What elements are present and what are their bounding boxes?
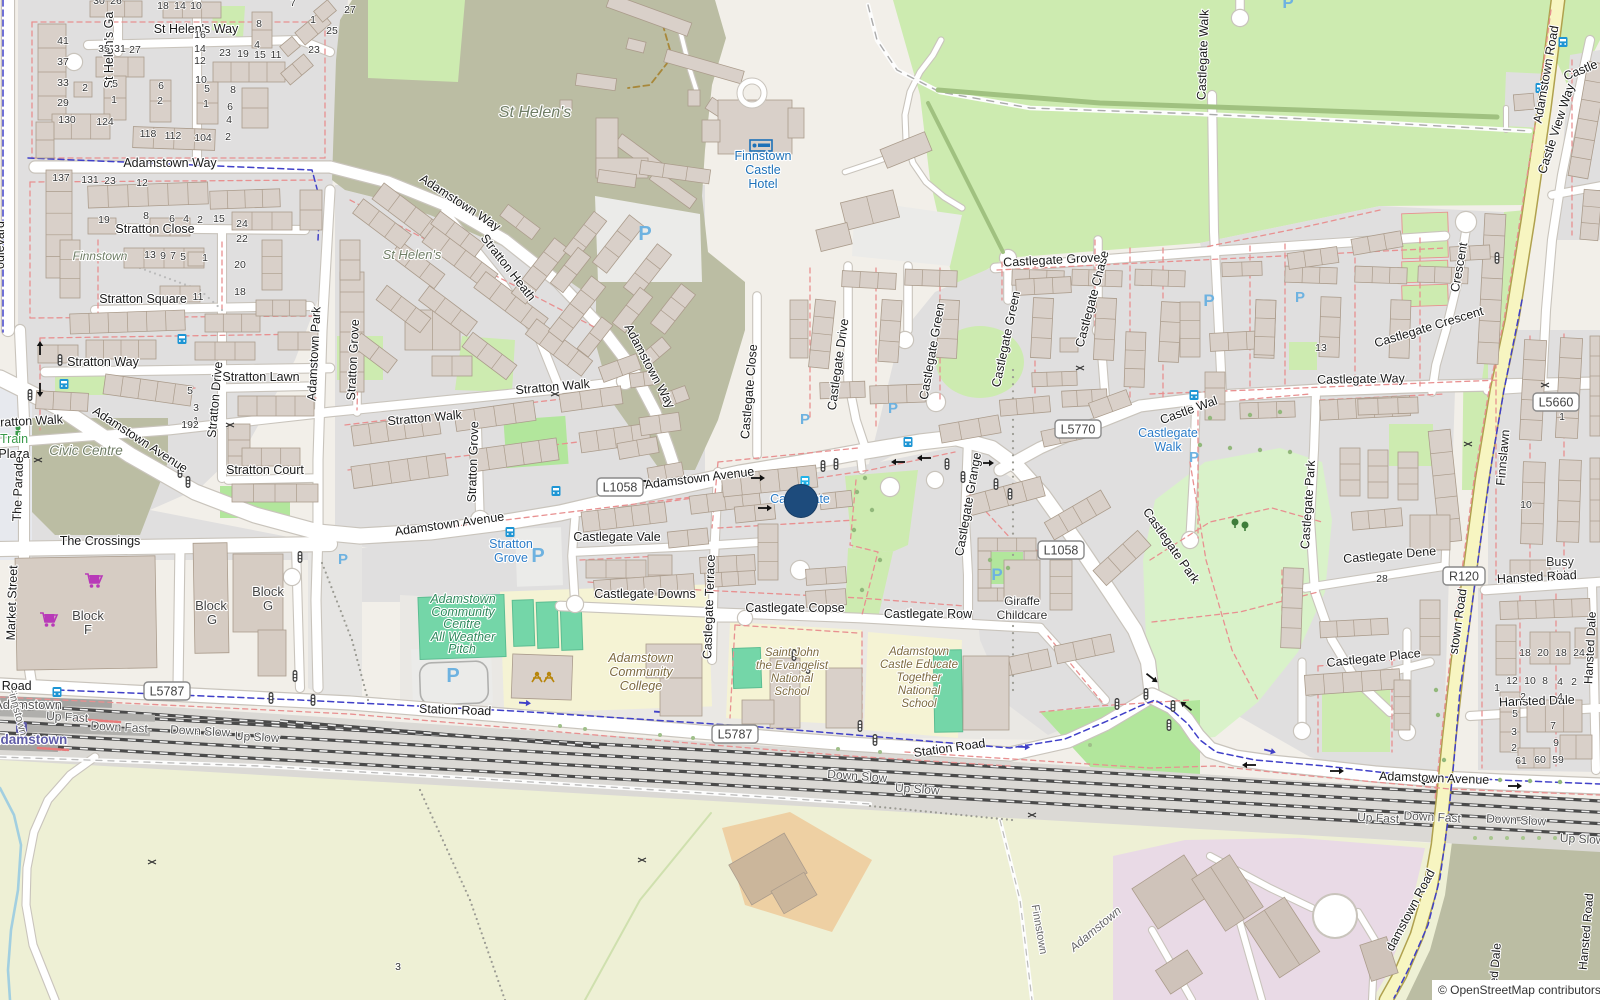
svg-text:12: 12 [136,177,148,189]
svg-text:Stratton Way: Stratton Way [67,355,140,369]
svg-text:13: 13 [144,249,156,261]
svg-text:Stratton: Stratton [489,537,533,551]
svg-text:P: P [446,665,459,687]
svg-text:4: 4 [183,213,189,225]
svg-text:112: 112 [165,130,182,142]
svg-text:30: 30 [93,0,105,7]
svg-text:© OpenStreetMap contributors: © OpenStreetMap contributors [1438,983,1600,997]
svg-text:G: G [263,598,273,613]
svg-text:Block: Block [72,608,104,623]
svg-text:P: P [888,400,898,417]
svg-text:oulevard: oulevard [0,221,7,269]
svg-text:25: 25 [326,25,338,37]
svg-text:Castlegate Copse: Castlegate Copse [745,601,844,615]
svg-text:Castlegate Way: Castlegate Way [1317,371,1406,387]
svg-text:School: School [901,698,937,710]
svg-text:28: 28 [1376,573,1388,585]
svg-text:Community: Community [609,665,673,679]
svg-text:R120: R120 [1449,570,1479,584]
svg-text:6: 6 [169,213,175,225]
svg-text:8: 8 [256,18,262,30]
svg-text:35: 35 [98,43,110,55]
svg-text:11: 11 [271,49,282,61]
svg-text:National: National [898,685,941,697]
svg-text:Adamstown: Adamstown [607,651,673,665]
svg-text:3: 3 [1511,726,1517,738]
svg-text:the Evangelist: the Evangelist [756,660,829,672]
svg-text:Adamstown: Adamstown [429,592,495,606]
svg-text:1: 1 [1559,411,1565,423]
svg-text:60: 60 [1534,754,1546,766]
svg-text:22: 22 [236,233,248,245]
svg-text:137: 137 [52,172,70,184]
svg-text:Grove: Grove [494,551,528,565]
svg-text:Block: Block [195,598,227,613]
svg-text:P: P [1282,0,1293,12]
svg-text:5: 5 [1512,708,1518,720]
svg-text:Train: Train [0,432,28,446]
svg-text:3: 3 [193,402,199,414]
svg-text:16: 16 [194,29,206,41]
svg-text:L1058: L1058 [1044,544,1079,558]
svg-text:41: 41 [57,35,69,47]
svg-text:18: 18 [157,0,169,12]
svg-text:Castlegate Row: Castlegate Row [884,607,973,621]
svg-text:13: 13 [1315,342,1327,354]
svg-text:Adamstown Way: Adamstown Way [123,156,217,170]
svg-text:4: 4 [1557,676,1563,688]
svg-text:St Helen's: St Helen's [499,104,571,121]
svg-text:6: 6 [158,80,164,92]
svg-text:2: 2 [82,82,88,94]
svg-text:Stratton Court: Stratton Court [226,463,304,477]
svg-text:Castlegate Vale: Castlegate Vale [573,530,660,544]
svg-text:2: 2 [1571,676,1577,688]
svg-text:5: 5 [187,385,193,397]
svg-text:The Crossings: The Crossings [60,534,141,548]
svg-text:27: 27 [129,44,141,56]
svg-text:7: 7 [290,0,296,9]
svg-text:Adamstown: Adamstown [0,732,67,747]
svg-text:2: 2 [1520,691,1526,703]
svg-text:P: P [1295,289,1305,306]
svg-text:4: 4 [1557,691,1563,703]
svg-text:Up Slow: Up Slow [235,729,281,745]
svg-text:School: School [774,686,810,698]
svg-text:2: 2 [197,214,203,226]
svg-text:1: 1 [203,98,209,110]
svg-text:24: 24 [1573,647,1585,659]
svg-text:10: 10 [1520,499,1532,511]
svg-text:23: 23 [308,44,320,56]
svg-text:The Parade: The Parade [10,456,26,522]
svg-text:12: 12 [194,55,206,67]
svg-text:Walk: Walk [1154,440,1182,454]
svg-text:33: 33 [57,77,69,89]
svg-text:L5787: L5787 [718,728,753,742]
svg-text:P: P [531,545,544,567]
svg-text:P: P [338,551,348,568]
svg-text:P: P [1189,449,1199,466]
svg-text:Finnstown: Finnstown [735,149,792,163]
svg-text:Castlegate Downs: Castlegate Downs [594,587,695,601]
svg-text:Up Fast: Up Fast [46,709,89,725]
svg-text:4: 4 [226,114,232,126]
svg-text:L5787: L5787 [150,685,185,699]
svg-text:3: 3 [395,961,401,973]
svg-text:Castlegate: Castlegate [1138,426,1198,440]
svg-text:8: 8 [143,210,149,222]
svg-text:Castle Educate: Castle Educate [880,659,958,671]
svg-text:National: National [771,673,814,685]
svg-text:L5770: L5770 [1061,423,1096,437]
svg-text:Hotel: Hotel [748,177,777,191]
svg-text:Station Road: Station Road [419,702,492,719]
svg-text:Up Fast: Up Fast [1357,810,1400,826]
svg-text:Finnstown: Finnstown [73,249,128,263]
svg-text:Together: Together [897,672,943,684]
svg-text:130: 130 [58,114,76,126]
svg-text:15: 15 [213,213,225,225]
svg-text:59: 59 [1552,754,1564,766]
svg-text:G: G [207,612,217,627]
svg-text:Giraffe: Giraffe [1004,594,1040,608]
svg-text:7: 7 [170,250,176,262]
svg-text:College: College [620,679,662,693]
svg-text:19: 19 [237,48,249,60]
svg-text:5: 5 [112,78,118,90]
svg-text:20: 20 [1537,647,1549,659]
svg-text:192: 192 [181,419,199,431]
svg-text:10: 10 [190,0,202,12]
svg-text:26: 26 [110,0,122,7]
svg-text:7: 7 [1550,720,1556,732]
svg-text:P: P [1203,291,1214,310]
svg-text:1: 1 [111,94,117,106]
svg-text:24: 24 [236,218,248,230]
svg-text:St Helen's: St Helen's [383,247,442,262]
svg-text:14: 14 [174,0,186,12]
svg-text:1: 1 [202,252,208,264]
svg-text:Childcare: Childcare [997,608,1048,622]
svg-text:1: 1 [1494,682,1500,694]
svg-text:31: 31 [114,43,126,55]
svg-text:Stratton Grove: Stratton Grove [465,421,482,503]
svg-text:18: 18 [234,286,246,298]
svg-text:9: 9 [160,250,166,262]
svg-text:9: 9 [1553,737,1559,749]
svg-text:6: 6 [227,101,233,113]
svg-text:11: 11 [193,291,204,303]
svg-text:Stratton Square: Stratton Square [99,292,187,306]
svg-text:2: 2 [225,131,231,143]
svg-text:18: 18 [1555,647,1567,659]
svg-text:61: 61 [1515,755,1527,767]
svg-text:Adamstown: Adamstown [888,646,949,658]
svg-text:23: 23 [104,175,116,187]
svg-text:10: 10 [1524,675,1536,687]
svg-text:5: 5 [180,251,186,263]
svg-text:2: 2 [1511,742,1517,754]
svg-text:Stratton Lawn: Stratton Lawn [222,370,299,384]
svg-text:23: 23 [219,47,231,59]
svg-text:L5660: L5660 [1539,396,1574,410]
svg-text:Pitch: Pitch [448,642,476,656]
svg-text:124: 124 [96,116,114,128]
svg-text:Saint John: Saint John [765,647,819,659]
svg-text:Block: Block [252,584,284,599]
svg-text:118: 118 [140,128,157,140]
svg-text:27: 27 [344,4,356,16]
svg-text:P: P [638,223,651,245]
svg-text:Centre: Centre [443,617,481,631]
svg-text:8: 8 [230,84,236,96]
svg-text:L1058: L1058 [603,481,638,495]
svg-text:29: 29 [57,97,69,109]
svg-text:Civic Centre: Civic Centre [49,443,123,458]
svg-text:131: 131 [81,174,99,186]
svg-text:10: 10 [195,74,207,86]
svg-text:4: 4 [254,39,260,51]
svg-text:on Road: on Road [0,679,32,693]
svg-text:18: 18 [1519,647,1531,659]
svg-text:19: 19 [98,214,110,226]
svg-text:P: P [800,411,810,428]
svg-text:2: 2 [157,95,163,107]
svg-text:Up Slow: Up Slow [1560,831,1600,847]
svg-text:Market Street: Market Street [4,565,21,641]
svg-text:8: 8 [1542,675,1548,687]
svg-text:Castle: Castle [745,163,780,177]
svg-text:P: P [991,565,1002,584]
svg-text:37: 37 [57,56,69,68]
svg-text:20: 20 [234,259,246,271]
svg-text:104: 104 [194,132,212,144]
svg-text:12: 12 [1506,675,1518,687]
svg-text:Busy: Busy [1546,555,1575,569]
svg-text:Hansted Dale: Hansted Dale [1499,693,1575,710]
svg-text:14: 14 [194,43,206,55]
svg-text:F: F [84,622,92,637]
svg-text:1: 1 [310,14,316,26]
